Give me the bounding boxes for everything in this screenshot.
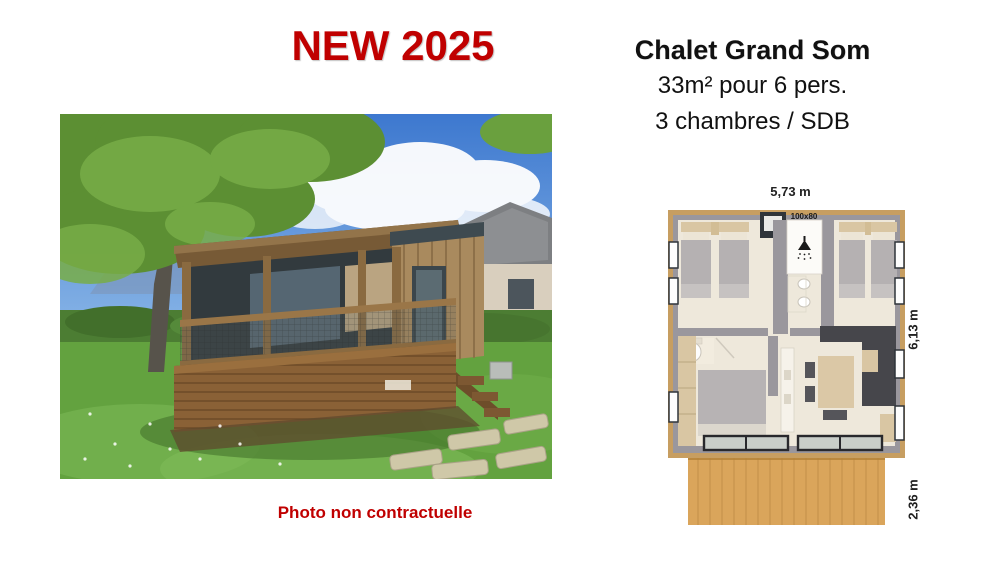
terrace-deck [688, 458, 885, 525]
plan-depth-label: 6,13 m [906, 309, 921, 349]
hall-counter [781, 348, 794, 432]
plan-width-label: 5,73 m [748, 184, 833, 199]
plan-terrace-label: 2,36 m [906, 479, 921, 519]
photo-caption: Photo non contractuelle [230, 503, 520, 523]
chalet [170, 220, 512, 452]
floor-plan [660, 180, 935, 530]
slide: { "header": { "badge": "NEW 2025", "badg… [0, 0, 1000, 563]
shower-size-label: 100x80 [787, 212, 821, 221]
floor-plan-drawing [660, 180, 935, 530]
subtitle-rooms: 3 chambres / SDB [600, 104, 905, 140]
page-title: Chalet Grand Som [600, 34, 905, 68]
subtitle-area: 33m² pour 6 pers. [600, 68, 905, 104]
chalet-photo [60, 114, 552, 479]
title-block: Chalet Grand Som 33m² pour 6 pers. 3 cha… [600, 34, 905, 140]
new-2025-badge: NEW 2025 [288, 22, 498, 70]
chalet-photo-illustration [60, 114, 552, 479]
